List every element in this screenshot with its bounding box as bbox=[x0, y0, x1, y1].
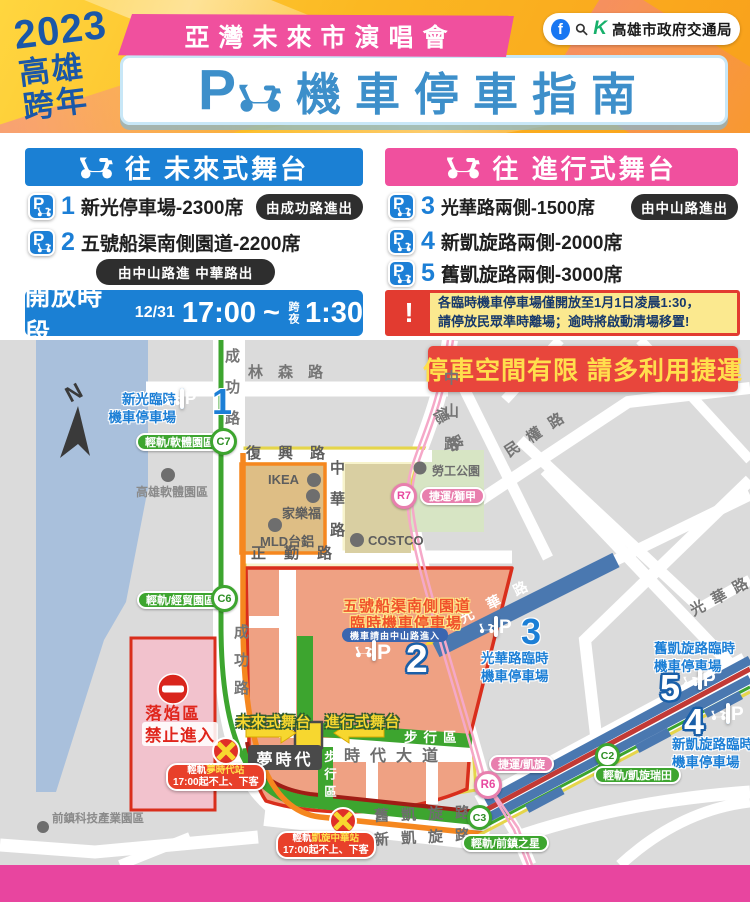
hours-start: 17:00 bbox=[182, 297, 256, 330]
road-jiukaixuan: 舊凱旋路 bbox=[374, 801, 483, 826]
p5-badge: P bbox=[698, 669, 702, 690]
progress-stage-label: 進行式舞台 bbox=[325, 711, 400, 732]
poi-ikea: IKEA bbox=[268, 472, 299, 487]
lot-number: 2 bbox=[61, 228, 75, 257]
scooter-icon bbox=[37, 242, 52, 253]
lot-row-1: P 1 新光停車場-2300席 由成功路進出 bbox=[28, 192, 363, 221]
warning-line2: 請停放民眾準時離場；逾時將啟動清場移置! bbox=[438, 313, 729, 332]
year: 2023 bbox=[12, 5, 109, 56]
lot-name: 光華路兩側-1500席 bbox=[441, 194, 595, 220]
transit-notice: 停車空間有限 請多利用捷運 bbox=[428, 346, 738, 392]
hours-overnight: 跨夜 bbox=[287, 301, 298, 325]
p2-number: 2 bbox=[406, 640, 428, 679]
p4-badge: P bbox=[726, 703, 730, 724]
scooter-icon bbox=[397, 241, 412, 252]
lot-name: 新光停車場-2300席 bbox=[81, 193, 244, 220]
station-c2-label: 輕軌/凱旋瑞田 bbox=[594, 766, 681, 784]
p3-number: 3 bbox=[521, 614, 541, 650]
station-r6: R6 bbox=[474, 771, 502, 799]
agency-name: 高雄市政府交通局 bbox=[612, 19, 732, 40]
poi-qianzhen-park: 前鎮科技產業園區 bbox=[52, 810, 144, 826]
lot-name: 五號船渠南側園道-2200席 bbox=[81, 229, 301, 256]
warning-icon: ! bbox=[388, 293, 430, 333]
progress-stage-header: 往 進行式舞台 bbox=[385, 148, 738, 186]
p4-label: 新凱旋路臨時 機車停車場 bbox=[672, 736, 750, 771]
parking-badge: P bbox=[28, 193, 55, 220]
lot-row-5: P 5 舊凱旋路兩側-3000席 bbox=[388, 259, 623, 288]
lot-row-4: P 4 新凱旋路兩側-2000席 bbox=[388, 227, 623, 256]
parking-badge: P bbox=[388, 260, 415, 287]
scooter-icon bbox=[683, 675, 699, 687]
lot-number: 3 bbox=[421, 192, 435, 221]
header: 2023 高雄 跨年 亞灣未來市演唱會 P 機車停車指南 f K 高雄市政府交通… bbox=[0, 0, 750, 133]
agency-link[interactable]: f K 高雄市政府交通局 bbox=[543, 13, 740, 45]
warning-line1: 各臨時機車停車場僅開放至1月1日凌晨1:30， bbox=[438, 294, 729, 313]
scooter-icon bbox=[479, 622, 495, 634]
page-title: 機車停車指南 bbox=[296, 58, 650, 123]
lot-row-3: P 3 光華路兩側-1500席 由中山路進出 bbox=[388, 192, 738, 221]
road-linsen: 林森路 bbox=[248, 361, 338, 382]
station-c3-label: 輕軌/前鎮之星 bbox=[462, 834, 549, 852]
scooter-icon bbox=[446, 154, 482, 180]
walk-zone-label-h: 步行區 bbox=[404, 726, 463, 746]
facebook-icon: f bbox=[551, 19, 570, 40]
poi-costco: COSTCO bbox=[368, 533, 424, 548]
lot-number: 5 bbox=[421, 259, 435, 288]
p4-number: 4 bbox=[684, 704, 704, 740]
p3-label: 光華路臨時 機車停車場 bbox=[481, 650, 549, 685]
poi-carrefour: 家樂福 bbox=[282, 503, 321, 522]
lot-name: 新凱旋路兩側-2000席 bbox=[441, 228, 623, 255]
firework-zone-label: 落焰區 bbox=[131, 700, 215, 724]
hours-date: 12/31 bbox=[135, 304, 175, 322]
warning-box: ! 各臨時機車停車場僅開放至1月1日凌晨1:30， 請停放民眾準時離場；逾時將啟… bbox=[385, 290, 740, 336]
walk-zone-label-v: 步行區 bbox=[320, 750, 339, 803]
hours-tilde: ~ bbox=[263, 297, 280, 330]
parking-badge: P bbox=[388, 228, 415, 255]
lot-row-2: P 2 五號船渠南側園道-2200席 bbox=[28, 228, 301, 257]
lot-note: 由成功路進出 bbox=[256, 194, 363, 220]
road-chenggong-lower: 成功路 bbox=[230, 624, 251, 708]
event-ribbon: 亞灣未來市演唱會 bbox=[118, 14, 514, 57]
scooter-icon bbox=[165, 394, 181, 406]
p2-badge: P bbox=[372, 640, 376, 661]
search-icon bbox=[575, 22, 588, 37]
lot-name: 舊凱旋路兩側-3000席 bbox=[441, 260, 623, 287]
warning-text: 各臨時機車停車場僅開放至1月1日凌晨1:30， 請停放民眾準時離場；逾時將啟動清… bbox=[430, 293, 737, 333]
kaohsiung-k-logo: K bbox=[593, 18, 607, 40]
future-stage-header: 往 未來式舞台 bbox=[25, 148, 363, 186]
poster: 2023 高雄 跨年 亞灣未來市演唱會 P 機車停車指南 f K 高雄市政府交通… bbox=[0, 0, 750, 902]
parking-map: 停車空間有限 請多利用捷運 N 成功路 成功路 林森路 復興路 正勤路 中華路 … bbox=[0, 340, 750, 865]
opening-hours: 開放時段 12/31 17:00 ~ 跨夜 1:30 bbox=[25, 290, 363, 336]
hours-end: 1:30 bbox=[305, 297, 363, 330]
info-section: 往 未來式舞台 往 進行式舞台 P 1 新光停車場-2300席 由成功路進出 P… bbox=[0, 133, 750, 340]
station-r7-label: 捷運/獅甲 bbox=[420, 487, 485, 505]
p1-number: 1 bbox=[212, 384, 232, 420]
event-year-city: 2023 高雄 跨年 bbox=[12, 5, 117, 124]
event-name: 亞灣未來市演唱會 bbox=[175, 18, 456, 54]
road-zhonghua: 中華路 bbox=[326, 460, 347, 553]
scooter-icon bbox=[238, 80, 284, 114]
poi-software-park: 高雄軟體園區 bbox=[136, 483, 208, 500]
scooter-icon bbox=[397, 206, 412, 217]
hours-label: 開放時段 bbox=[25, 277, 128, 349]
scooter-icon bbox=[79, 154, 115, 180]
kaixuan-zhonghua-station-closure: 輕軌凱旋中華站 17:00起不上、下客 bbox=[276, 831, 376, 859]
p3-badge: P bbox=[494, 616, 498, 637]
p2-entry-pill: 機車請由中山路進入 bbox=[342, 628, 448, 642]
station-r6-label: 捷運/凱旋 bbox=[489, 755, 554, 773]
scooter-icon bbox=[37, 206, 52, 217]
station-c6: C6 bbox=[211, 585, 238, 612]
scooter-icon bbox=[355, 645, 373, 658]
no-entry-label: 禁止進入 bbox=[142, 722, 218, 746]
station-c3: C3 bbox=[467, 805, 492, 830]
future-stage-label: 未來式舞台 bbox=[236, 711, 311, 732]
scooter-icon bbox=[397, 273, 412, 284]
parking-badge: P bbox=[28, 229, 55, 256]
parking-badge: P bbox=[388, 193, 415, 220]
future-stage-title: 往 未來式舞台 bbox=[125, 149, 309, 186]
lot-note: 由中山路進出 bbox=[631, 194, 738, 220]
station-c2: C2 bbox=[595, 743, 620, 768]
title-box: P 機車停車指南 bbox=[120, 55, 728, 125]
progress-stage-title: 往 進行式舞台 bbox=[492, 149, 676, 186]
parking-letter: P bbox=[198, 57, 236, 123]
lot-number: 4 bbox=[421, 227, 435, 256]
p5-number: 5 bbox=[660, 670, 680, 706]
footer-band bbox=[0, 865, 750, 902]
dream-station-closure: 輕軌夢時代站 17:00起不上、下客 bbox=[166, 763, 266, 791]
station-r7: R7 bbox=[391, 483, 417, 509]
lot-number: 1 bbox=[61, 192, 75, 221]
scooter-icon bbox=[711, 709, 727, 721]
station-c7: C7 bbox=[210, 428, 237, 455]
p1-badge: P bbox=[180, 388, 184, 409]
